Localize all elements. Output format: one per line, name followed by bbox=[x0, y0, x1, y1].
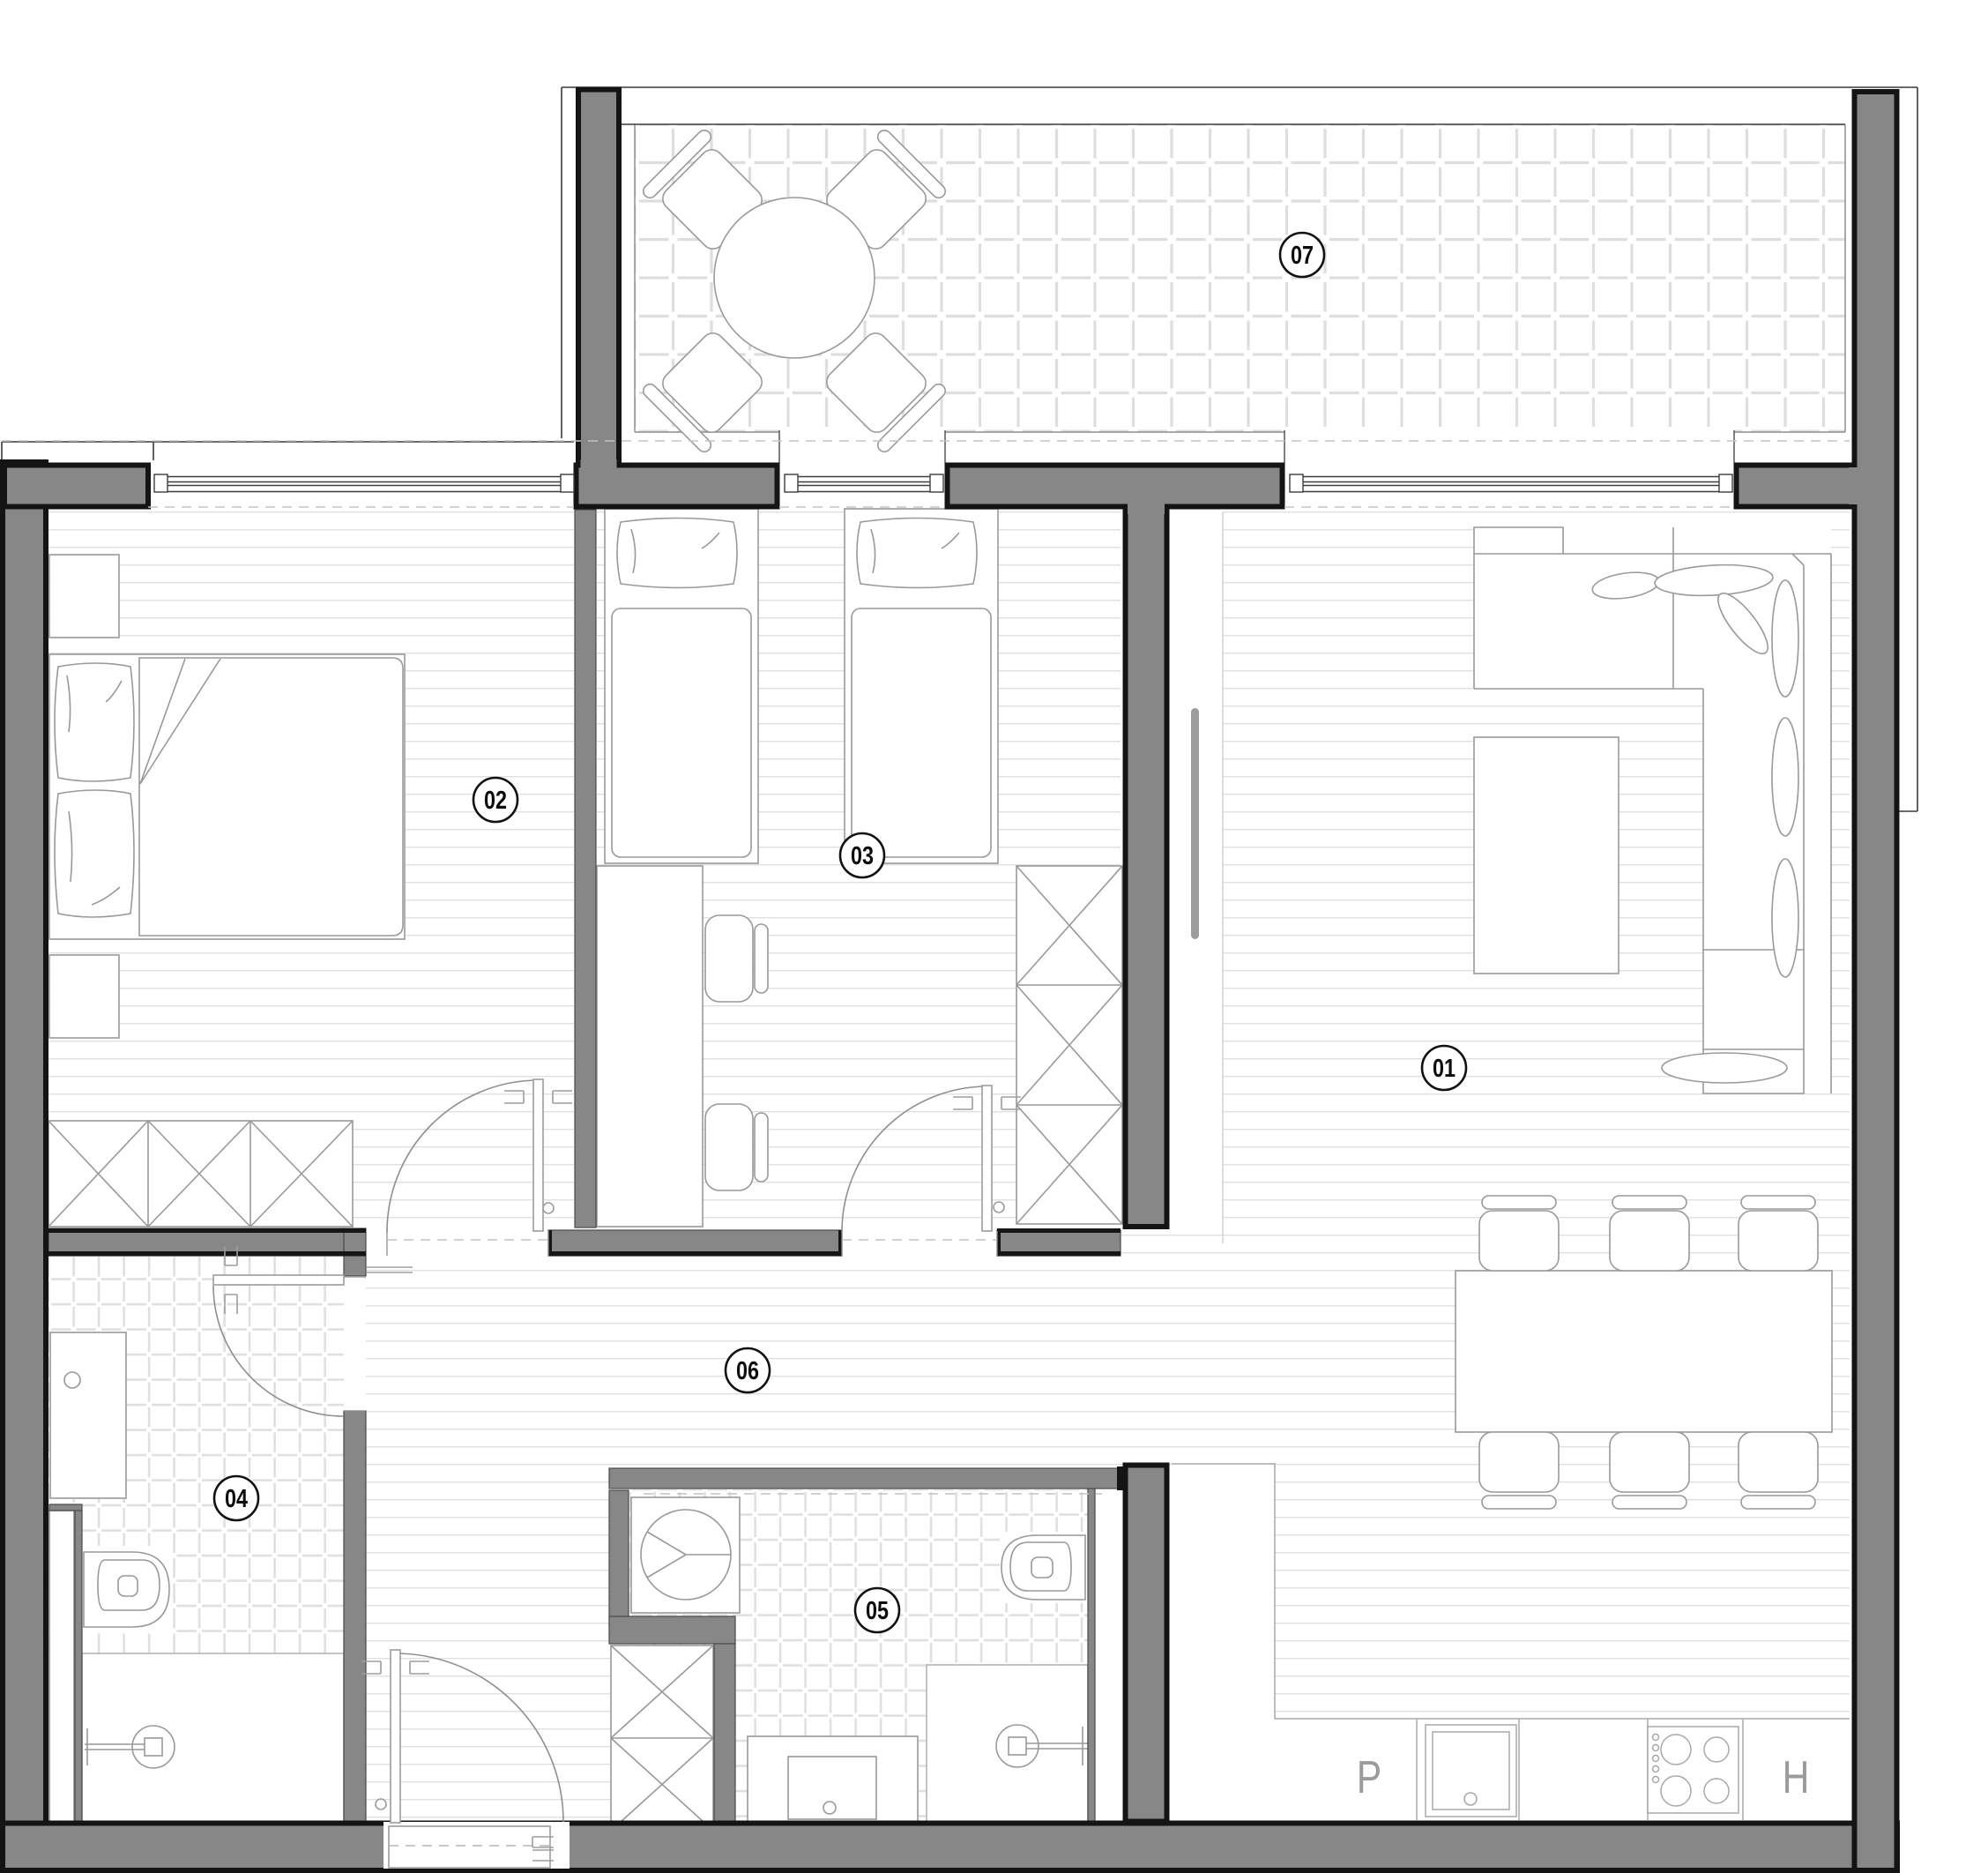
svg-text:03: 03 bbox=[851, 841, 874, 870]
svg-text:04: 04 bbox=[225, 1484, 248, 1513]
svg-text:06: 06 bbox=[736, 1356, 759, 1385]
svg-text:07: 07 bbox=[1291, 241, 1314, 270]
svg-text:01: 01 bbox=[1433, 1054, 1456, 1083]
svg-text:05: 05 bbox=[866, 1596, 889, 1625]
svg-text:P: P bbox=[1357, 1752, 1381, 1803]
svg-text:H: H bbox=[1783, 1752, 1810, 1803]
svg-text:02: 02 bbox=[484, 786, 507, 815]
